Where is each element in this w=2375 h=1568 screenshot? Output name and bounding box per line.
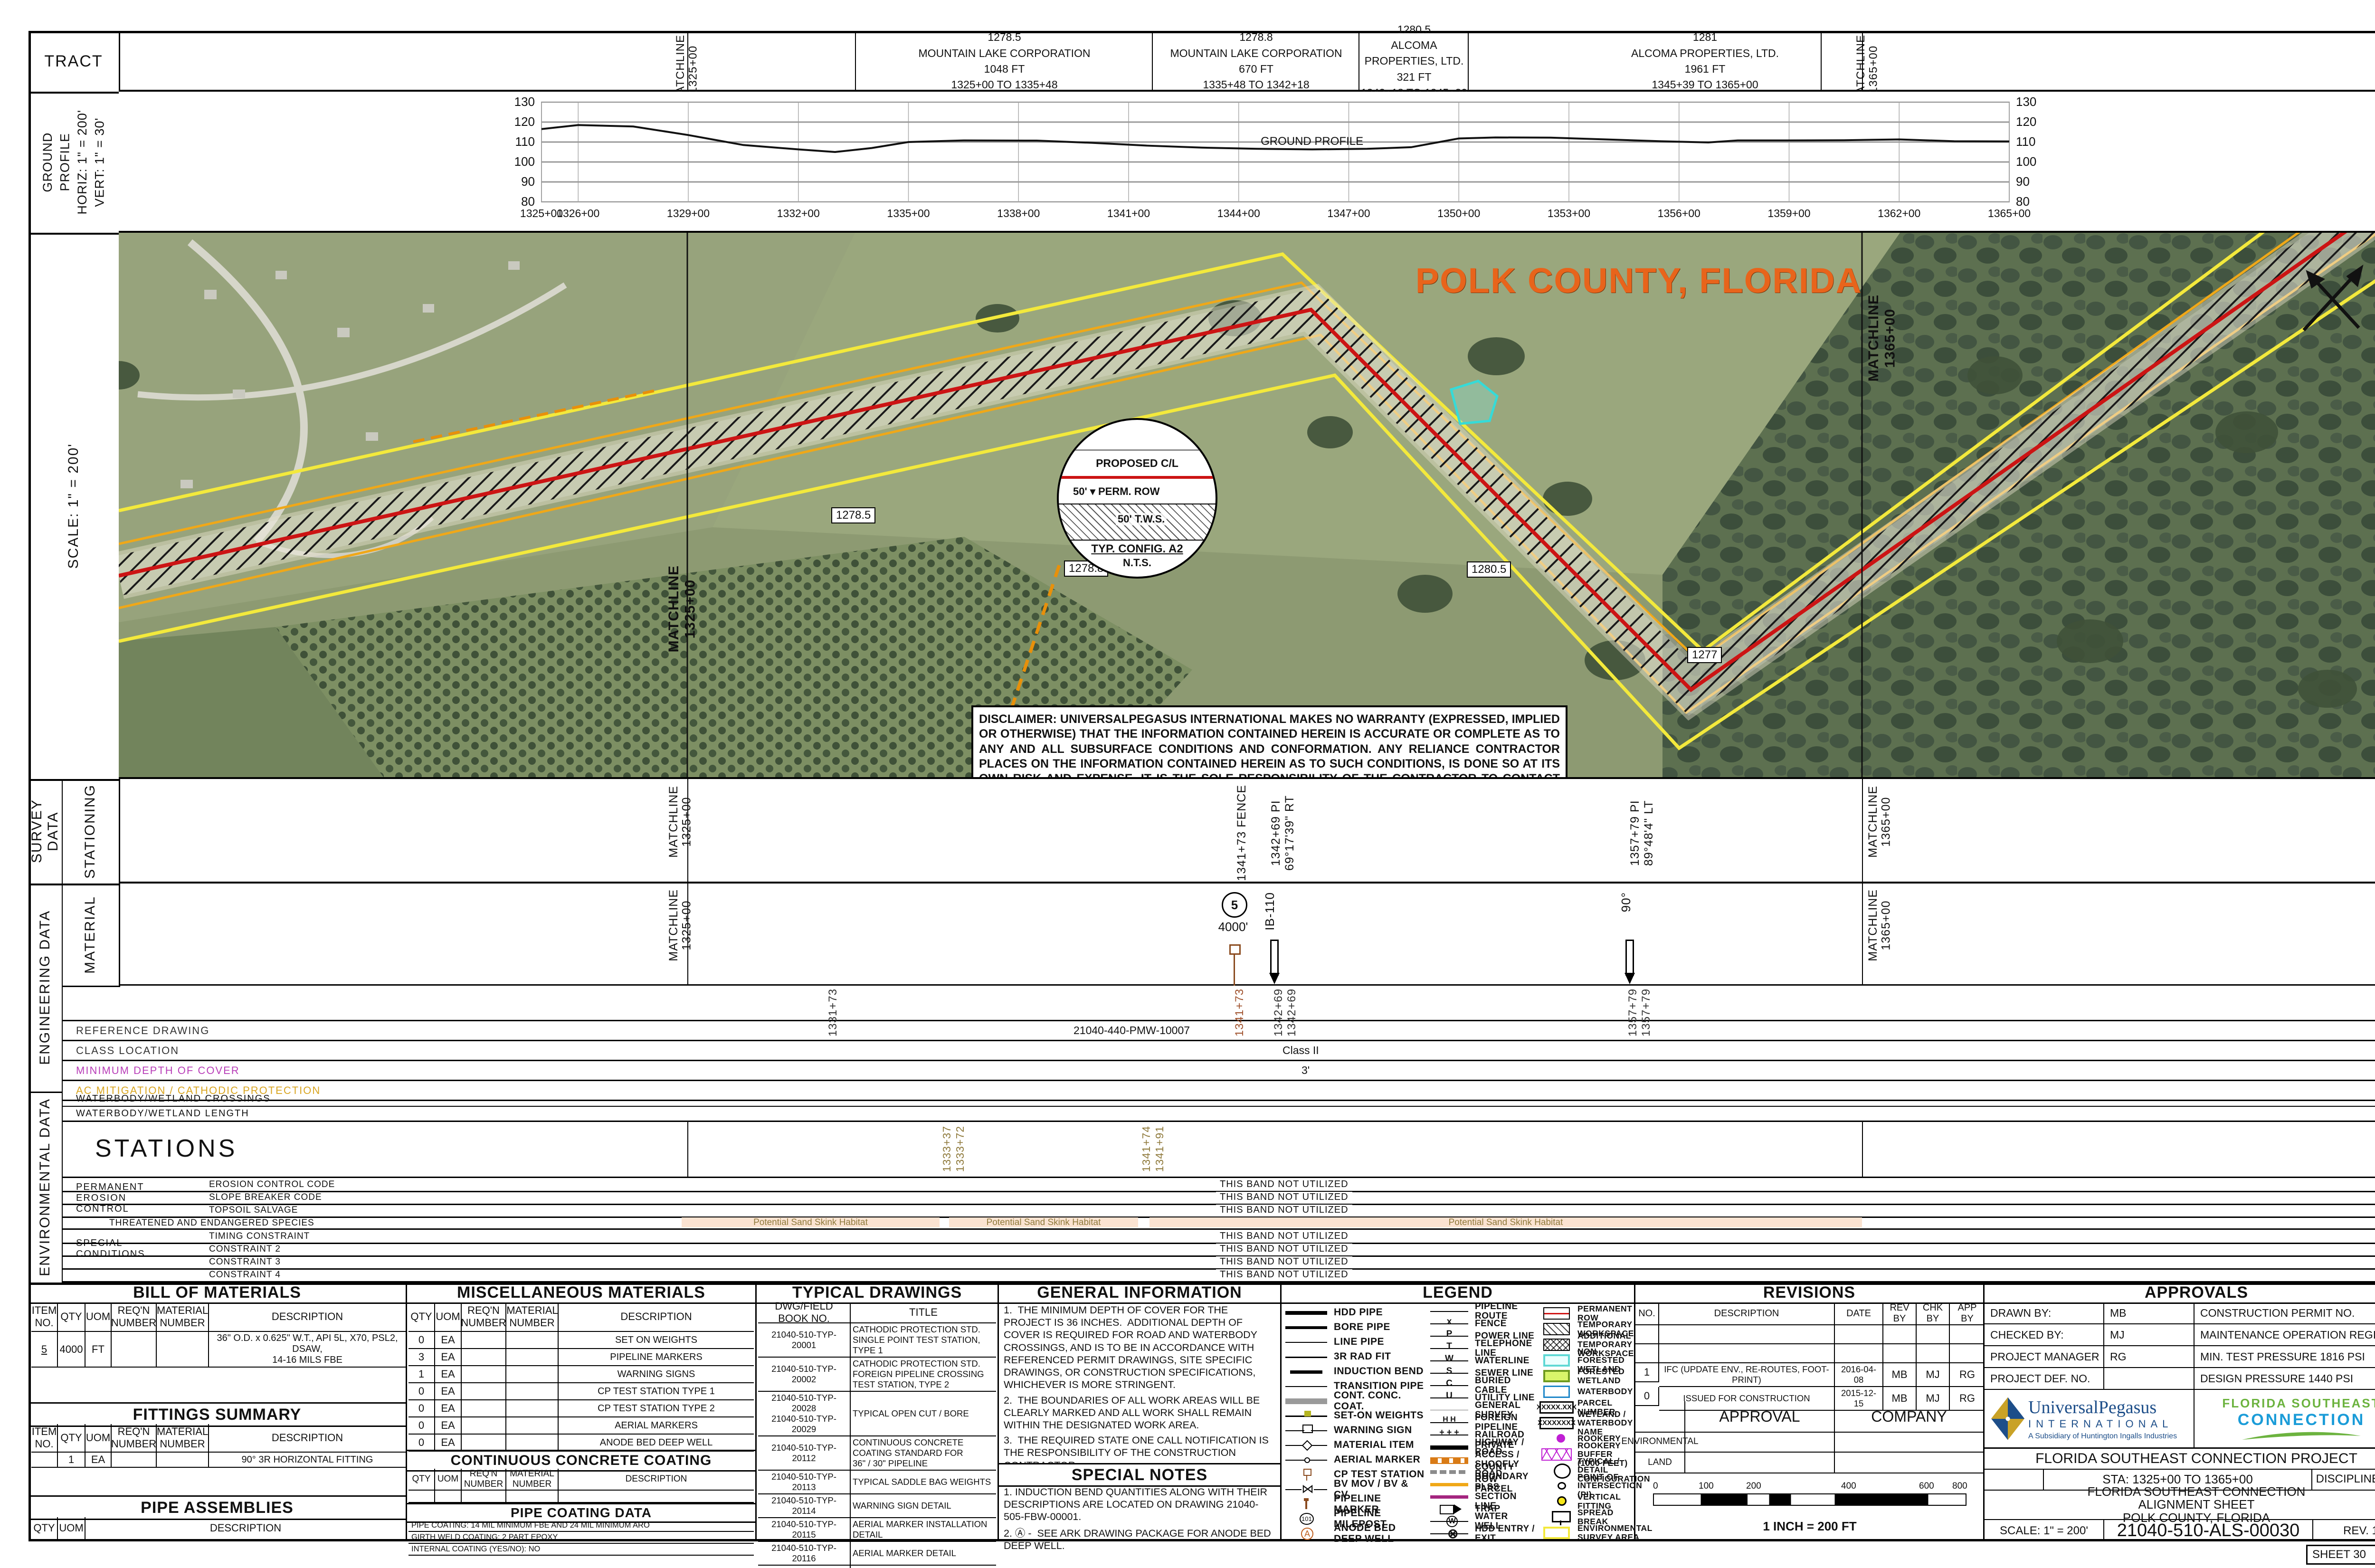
ccc-header-row: QTYUOMREQ'N NUMBERMATERIAL NUMBERDESCRIP… bbox=[408, 1469, 754, 1491]
typ-config-detail: PROPOSED C/L 50' ▾ PERM. ROW 50' T.W.S. … bbox=[1057, 418, 1217, 579]
legend-item: BURIED CABLE bbox=[1430, 1379, 1537, 1392]
svg-text:1332+00: 1332+00 bbox=[777, 207, 820, 219]
legend-label: TELEPHONE LINE bbox=[1475, 1339, 1537, 1358]
legend-symbol-icon bbox=[1285, 1513, 1327, 1525]
svg-text:120: 120 bbox=[2016, 114, 2036, 129]
engineering-stations-strip: 1331+731341+731342+691342+691357+791357+… bbox=[62, 986, 2375, 1021]
detail-perm-row: 50' ▾ PERM. ROW bbox=[1073, 485, 1160, 498]
env-station: 1341+74 bbox=[1140, 1126, 1153, 1172]
legend-item: ANODE BED DEEP WELL bbox=[1285, 1526, 1425, 1541]
env-band-row-label: SLOPE BREAKER CODE bbox=[209, 1192, 418, 1203]
general-info-item: 2. THE BOUNDARIES OF ALL WORK AREAS WILL… bbox=[999, 1393, 1280, 1433]
tract-owner: ALCOMA PROPERTIES, LTD. bbox=[1359, 38, 1469, 69]
env-band-row-label: EROSION CONTROL CODE bbox=[209, 1179, 418, 1190]
legend-symbol-icon bbox=[1285, 1395, 1327, 1407]
legend-symbol-icon bbox=[1285, 1351, 1327, 1363]
svg-text:120: 120 bbox=[514, 114, 535, 129]
legend-symbol-icon bbox=[1539, 1386, 1574, 1398]
survey-matchline-left: MATCHLINE 1325+00 bbox=[667, 786, 693, 858]
revisions-header-cell: DESCRIPTION bbox=[1659, 1302, 1835, 1325]
legend-symbol-icon bbox=[1430, 1491, 1468, 1503]
legend-symbol-icon bbox=[1430, 1318, 1468, 1330]
tract-stations: 1335+48 TO 1342+18 bbox=[1203, 77, 1309, 93]
general-info-title: GENERAL INFORMATION bbox=[999, 1283, 1280, 1304]
fittings-header-cell: UOM bbox=[85, 1424, 112, 1453]
fittings-header-cell: ITEM NO. bbox=[31, 1424, 58, 1453]
tract-length: 670 FT bbox=[1239, 61, 1273, 77]
misc-header-cell: REQ'N NUMBER bbox=[462, 1302, 506, 1332]
legend-item: INDUCTION BEND bbox=[1285, 1364, 1425, 1379]
bom-row: 54000FT36" O.D. x 0.625" W.T., API 5L, X… bbox=[31, 1332, 406, 1368]
env-band-row-label: TIMING CONSTRAINT bbox=[209, 1231, 418, 1242]
legend-item: ENVIRONMENTAL SURVEY AREA bbox=[1539, 1525, 1634, 1540]
band-not-utilized: THIS BAND NOT UTILIZED bbox=[1216, 1192, 1352, 1203]
revisions-header-row: NO.DESCRIPTIONDATEREV BYCHK BYAPP BY bbox=[1635, 1302, 1983, 1325]
stations-label: STATIONS bbox=[95, 1134, 237, 1163]
approvals-row: DRAWN BY:MBCONSTRUCTION PERMIT NO. bbox=[1985, 1302, 2375, 1324]
misc-row: 0EACP TEST STATION TYPE 1 bbox=[408, 1383, 754, 1400]
detail-proposed-cl: PROPOSED C/L bbox=[1059, 457, 1216, 470]
svg-text:1365+00: 1365+00 bbox=[1988, 207, 2031, 219]
svg-text:1326+00: 1326+00 bbox=[557, 207, 599, 219]
legend-item: WATERLINE bbox=[1430, 1355, 1537, 1367]
misc-row: 0EAAERIAL MARKERS bbox=[408, 1417, 754, 1435]
env-crossings-row: WATERBODY/WETLAND CROSSINGS bbox=[62, 1092, 2375, 1107]
legend-item: SPREAD BREAK bbox=[1539, 1509, 1634, 1525]
general-info-item: 3. THE REQUIRED STATE ONE CALL NOTIFICAT… bbox=[999, 1433, 1280, 1463]
svg-text:1359+00: 1359+00 bbox=[1767, 207, 1810, 219]
ccc-header-cell: UOM bbox=[435, 1469, 462, 1491]
legend-label: PIPELINE ROUTE bbox=[1475, 1302, 1537, 1321]
detail-tws: 50' T.W.S. bbox=[1116, 513, 1167, 525]
legend-symbol-icon bbox=[1285, 1410, 1327, 1422]
cp-test-station-icon bbox=[1229, 944, 1241, 955]
legend-item: VERTICAL FITTING bbox=[1539, 1493, 1634, 1509]
legend-symbol-icon bbox=[1285, 1321, 1327, 1334]
svg-text:100: 100 bbox=[514, 154, 535, 169]
sheet-number-box: SHEET 30 bbox=[2306, 1545, 2375, 1565]
svg-text:1341+00: 1341+00 bbox=[1107, 207, 1150, 219]
ccc-header-cell: REQ'N NUMBER bbox=[462, 1469, 506, 1491]
revisions-title: REVISIONS bbox=[1635, 1283, 1983, 1304]
legend-label: WATERBODY bbox=[1577, 1387, 1633, 1396]
legend-symbol-icon bbox=[1285, 1439, 1327, 1452]
legend-symbol-icon bbox=[1539, 1511, 1574, 1523]
detail-title: TYP. CONFIG. A2 bbox=[1059, 542, 1216, 556]
scale-note: SCALE: 1" = 200' bbox=[1985, 1520, 2104, 1541]
env-band-row: TOPSOIL SALVAGE THIS BAND NOT UTILIZED bbox=[62, 1204, 2375, 1218]
general-info-item: 1. THE MINIMUM DEPTH OF COVER FOR THE PR… bbox=[999, 1302, 1280, 1393]
legend-symbol-icon bbox=[1539, 1433, 1574, 1445]
svg-text:1335+00: 1335+00 bbox=[887, 207, 930, 219]
legend-symbol-icon bbox=[1539, 1464, 1574, 1476]
bom-header-cell: QTY bbox=[58, 1302, 85, 1332]
env-station: 1333+37 bbox=[940, 1126, 953, 1172]
special-note-item: 2. Ⓐ - SEE ARK DRAWING PACKAGE FOR ANODE… bbox=[999, 1525, 1280, 1554]
up-logo-tag: A Subsidiary of Huntington Ingalls Indus… bbox=[2028, 1432, 2177, 1441]
misc-row: 1EAWARNING SIGNS bbox=[408, 1366, 754, 1383]
survey-inner-label: STATIONING bbox=[62, 779, 120, 885]
up-logo-name: UniversalPegasus bbox=[2028, 1397, 2177, 1418]
tract-label: TRACT bbox=[28, 31, 120, 94]
legend-symbol-icon bbox=[1430, 1429, 1468, 1441]
misc-header-row: QTYUOMREQ'N NUMBERMATERIAL NUMBERDESCRIP… bbox=[408, 1302, 754, 1332]
legend-item: PERMANENT ROW bbox=[1539, 1305, 1634, 1321]
svg-text:1344+00: 1344+00 bbox=[1217, 207, 1260, 219]
svg-text:110: 110 bbox=[2016, 134, 2035, 149]
svg-text:80: 80 bbox=[2016, 194, 2030, 209]
legend-item: PLSS SECTION LINE bbox=[1430, 1491, 1537, 1503]
misc-row: 0EASET ON WEIGHTS bbox=[408, 1332, 754, 1349]
revisions-header-cell: REV BY bbox=[1883, 1302, 1917, 1325]
legend-symbol-icon bbox=[1430, 1392, 1468, 1404]
legend-label: WATERLINE bbox=[1475, 1356, 1529, 1366]
legend-symbol-icon bbox=[1285, 1380, 1327, 1393]
legend-symbol-icon bbox=[1285, 1498, 1327, 1511]
typical-row: 21040-510-TYP-20117TYPICAL PIPELINE MARK… bbox=[758, 1566, 996, 1568]
legend-symbol-icon bbox=[1539, 1448, 1574, 1461]
legend-symbol-icon bbox=[1430, 1454, 1468, 1466]
fittings-header-cell: MATERIAL NUMBER bbox=[157, 1424, 209, 1453]
legend-symbol-icon bbox=[1430, 1305, 1468, 1318]
env-band-row-label: CONSTRAINT 4 bbox=[209, 1270, 418, 1280]
env-band-row: EROSION CONTROL CODE THIS BAND NOT UTILI… bbox=[62, 1178, 2375, 1192]
te-species-label: THREATENED AND ENDANGERED SPECIES bbox=[109, 1218, 314, 1228]
legend-symbol-icon bbox=[1430, 1355, 1468, 1367]
fsc-logo-line1: FLORIDA SOUTHEAST bbox=[2222, 1396, 2375, 1411]
legend-label: FOREIGN PIPELINE bbox=[1475, 1413, 1537, 1432]
coating-line: PIPE COATING: 14 MIL MINIMUM FBE AND 24 … bbox=[408, 1520, 754, 1532]
legend-label: BURIED CABLE bbox=[1475, 1376, 1537, 1395]
approvals-row: CHECKED BY:MJMAINTENANCE OPERATION REGIO… bbox=[1985, 1324, 2375, 1346]
legend-symbol-icon bbox=[1430, 1528, 1468, 1540]
legend-symbol-icon bbox=[1285, 1483, 1327, 1496]
material-band: MATCHLINE 1325+00 MATCHLINE 1365+00 5 40… bbox=[119, 884, 2375, 986]
profile-label-cell: GROUND PROFILE HORIZ: 1" = 200' VERT: 1"… bbox=[28, 92, 120, 235]
revisions-header-cell: APP BY bbox=[1950, 1302, 1985, 1325]
legend-item: FORESTED WETLAND bbox=[1539, 1368, 1634, 1384]
band-not-utilized: THIS BAND NOT UTILIZED bbox=[1216, 1205, 1352, 1216]
material-matchline-left: MATCHLINE 1325+00 bbox=[667, 889, 693, 961]
band-not-utilized: THIS BAND NOT UTILIZED bbox=[1216, 1244, 1352, 1254]
legend-symbol-icon bbox=[1430, 1441, 1468, 1454]
legend-item: LINE PIPE bbox=[1285, 1335, 1425, 1349]
misc-header-cell: DESCRIPTION bbox=[559, 1302, 754, 1332]
legend-symbol-icon bbox=[1539, 1480, 1574, 1492]
legend-symbol-icon bbox=[1430, 1466, 1468, 1478]
env-stations-band: STATIONS 1333+371333+721341+741341+91 bbox=[62, 1122, 2375, 1178]
tract-owner: ALCOMA PROPERTIES, LTD. bbox=[1631, 46, 1779, 61]
tract-cell: 1278.5 MOUNTAIN LAKE CORPORATION 1048 FT… bbox=[855, 31, 1153, 92]
profile-label: GROUND PROFILE HORIZ: 1" = 200' VERT: 1"… bbox=[39, 110, 108, 215]
misc-header-cell: UOM bbox=[435, 1302, 462, 1332]
band-not-utilized: THIS BAND NOT UTILIZED bbox=[1216, 1256, 1352, 1267]
legend-symbol-icon bbox=[1539, 1527, 1574, 1539]
env-band-row: CONSTRAINT 4 THIS BAND NOT UTILIZED bbox=[62, 1268, 2375, 1283]
bom-header-row: ITEM NO.QTYUOMREQ'N NUMBERMATERIAL NUMBE… bbox=[31, 1302, 406, 1332]
misc-title: MISCELLANEOUS MATERIALS bbox=[407, 1283, 755, 1304]
engineering-row-value: 21040-440-PMW-10007 bbox=[1073, 1021, 1190, 1040]
tract-cell: 1278.8 MOUNTAIN LAKE CORPORATION 670 FT … bbox=[1152, 31, 1359, 92]
legend-symbol-icon bbox=[1539, 1323, 1574, 1335]
assemblies-header-cell: QTY bbox=[31, 1517, 58, 1540]
sheet-title-block: FLORIDA SOUTHEAST CONNECTION ALIGNMENT S… bbox=[1985, 1491, 2375, 1520]
typical-row: 21040-510-TYP-20002CATHODIC PROTECTION S… bbox=[758, 1358, 996, 1392]
env-band-row-label: TOPSOIL SALVAGE bbox=[209, 1205, 418, 1216]
legend-symbol-icon bbox=[1285, 1366, 1327, 1378]
fittings-title: FITTINGS SUMMARY bbox=[28, 1402, 406, 1427]
legend-label: SET-ON WEIGHTS bbox=[1334, 1410, 1424, 1421]
legend-item: NON FORESTED WETLAND bbox=[1539, 1352, 1634, 1368]
legend-label: 3R RAD FIT bbox=[1334, 1351, 1391, 1362]
detail-nts: N.T.S. bbox=[1059, 557, 1216, 569]
engineering-row-label: CLASS LOCATION bbox=[76, 1041, 179, 1060]
coating-line: GIRTH WELD COATING: 2 PART EPOXY bbox=[408, 1532, 754, 1544]
engineering-row-value: 3' bbox=[1301, 1061, 1310, 1080]
survey-station-label: 1357+79 PI 89°48'4" LT bbox=[1628, 785, 1656, 882]
legend-item: CONT. CONC. COAT. bbox=[1285, 1394, 1425, 1408]
map-parcel-label: 1278.5 bbox=[831, 507, 875, 523]
legend-symbol-icon bbox=[1430, 1342, 1468, 1355]
fittings-header-cell: QTY bbox=[58, 1424, 85, 1453]
survey-matchline-right: MATCHLINE 1365+00 bbox=[1867, 786, 1893, 858]
habitat-segment: Potential Sand Skink Habitat bbox=[682, 1217, 940, 1227]
tract-owner: MOUNTAIN LAKE CORPORATION bbox=[918, 46, 1090, 61]
fittings-header-row: ITEM NO.QTYUOMREQ'N NUMBERMATERIAL NUMBE… bbox=[31, 1424, 406, 1453]
habitat-segment: Potential Sand Skink Habitat bbox=[1149, 1217, 1862, 1227]
tract-number: 1278.5 bbox=[988, 29, 1021, 45]
band-not-utilized: THIS BAND NOT UTILIZED bbox=[1216, 1231, 1352, 1242]
fsc-logo-swoosh bbox=[2240, 1429, 2363, 1442]
legend-symbol-icon bbox=[1285, 1336, 1327, 1349]
map-scale-label: SCALE: 1" = 200' bbox=[66, 443, 82, 569]
material-label: MATERIAL bbox=[62, 884, 120, 987]
misc-header-cell: QTY bbox=[408, 1302, 435, 1332]
fittings-row: 1EA90° 3R HORIZONTAL FITTING bbox=[31, 1453, 406, 1468]
revisions-header-cell: DATE bbox=[1835, 1302, 1883, 1325]
map-matchline-right-label: MATCHLINE 1365+00 bbox=[1866, 295, 1899, 381]
survey-outer-label: SURVEY DATA bbox=[28, 779, 63, 885]
drawing-number: 21040-510-ALS-00030 bbox=[2104, 1520, 2313, 1541]
scale-caption: 1 INCH = 200 FT bbox=[1653, 1519, 1966, 1534]
engineering-row: MINIMUM DEPTH OF COVER 3' bbox=[62, 1061, 2375, 1081]
map-band: POLK COUNTY, FLORIDA MATCHLINE 1325+00 M… bbox=[119, 233, 2375, 779]
scale-bar: 0 100 200 400 600 800 1 INCH = 200 FT bbox=[1653, 1481, 1966, 1534]
legend-item: AERIAL MARKER bbox=[1285, 1453, 1425, 1467]
survey-station-label: 1342+69 PI 69°17'39" RT bbox=[1269, 785, 1297, 882]
env-band-row: CONSTRAINT 3 THIS BAND NOT UTILIZED bbox=[62, 1255, 2375, 1270]
bom-header-cell: DESCRIPTION bbox=[209, 1302, 406, 1332]
env-band-row-label: CONSTRAINT 2 bbox=[209, 1244, 418, 1254]
legend-label: ENVIRONMENTAL SURVEY AREA bbox=[1577, 1524, 1653, 1541]
svg-text:90: 90 bbox=[521, 174, 535, 189]
legend-item: TELEPHONE LINE bbox=[1430, 1342, 1537, 1355]
svg-text:1329+00: 1329+00 bbox=[667, 207, 710, 219]
bom-header-cell: ITEM NO. bbox=[31, 1302, 58, 1332]
band-not-utilized: THIS BAND NOT UTILIZED bbox=[1216, 1179, 1352, 1190]
legend-label: CONT. CONC. COAT. bbox=[1334, 1390, 1425, 1411]
approval-row: LAND bbox=[1635, 1453, 1983, 1473]
sheet-title-line2: ALIGNMENT SHEET bbox=[2138, 1498, 2254, 1511]
ccc-row bbox=[408, 1491, 754, 1503]
env-length-label: WATERBODY/WETLAND LENGTH bbox=[76, 1108, 249, 1119]
legend-label: AERIAL MARKER bbox=[1334, 1454, 1420, 1465]
bom-header-cell: UOM bbox=[85, 1302, 112, 1332]
legend-label: HDD ENTRY / EXIT bbox=[1475, 1524, 1537, 1543]
svg-text:1347+00: 1347+00 bbox=[1327, 207, 1370, 219]
map-title: POLK COUNTY, FLORIDA bbox=[1411, 260, 1867, 301]
map-matchline-left-label: MATCHLINE 1325+00 bbox=[666, 565, 699, 652]
bom-title: BILL OF MATERIALS bbox=[28, 1283, 406, 1304]
typical-row: 21040-510-TYP-20028 21040-510-TYP-20029T… bbox=[758, 1392, 996, 1436]
up-logo: UniversalPegasus INTERNATIONAL A Subsidi… bbox=[1985, 1390, 2194, 1449]
legend-label: INDUCTION BEND bbox=[1334, 1366, 1424, 1377]
sheet-title-line1: FLORIDA SOUTHEAST CONNECTION bbox=[2088, 1485, 2306, 1498]
legend-item: WATERBODY bbox=[1539, 1384, 1634, 1399]
legend-symbol-icon bbox=[1539, 1354, 1574, 1367]
legend-symbol-icon bbox=[1430, 1503, 1468, 1515]
engineering-row-label: REFERENCE DRAWING bbox=[76, 1021, 209, 1040]
ccc-header-cell: MATERIAL NUMBER bbox=[506, 1469, 559, 1491]
env-station: 1341+91 bbox=[1153, 1126, 1166, 1172]
tract-band: MATCHLINE 1325+00 MATCHLINE 1365+00 1278… bbox=[119, 31, 2375, 92]
engineering-outer-label: ENGINEERING DATA bbox=[28, 884, 63, 1093]
material-item-ib: IB-110 bbox=[1263, 892, 1277, 931]
legend-symbol-icon bbox=[1539, 1339, 1574, 1351]
legend-item: HDD PIPE bbox=[1285, 1305, 1425, 1320]
approvals-title: APPROVALS bbox=[1985, 1283, 2375, 1304]
legend-label: WETLAND / WATERBODY NAME bbox=[1577, 1410, 1634, 1436]
engineering-row-value: Class II bbox=[1282, 1041, 1319, 1060]
env-band-row-label: CONSTRAINT 3 bbox=[209, 1257, 418, 1267]
tract-stations: 1325+00 TO 1335+48 bbox=[951, 77, 1057, 93]
legend-label: WARNING SIGN bbox=[1334, 1425, 1412, 1435]
special-note-item: 1. INDUCTION BEND QUANTITIES ALONG WITH … bbox=[999, 1484, 1280, 1525]
survey-band: MATCHLINE 1325+00 MATCHLINE 1365+00 1341… bbox=[119, 779, 2375, 884]
survey-station-label: 1341+73 FENCE bbox=[1235, 785, 1249, 881]
env-band-row: CONSTRAINT 2 THIS BAND NOT UTILIZED bbox=[62, 1243, 2375, 1257]
project-name-row: FLORIDA SOUTHEAST CONNECTION PROJECT bbox=[1985, 1449, 2375, 1470]
tract-length: 1048 FT bbox=[984, 61, 1025, 77]
band-not-utilized: THIS BAND NOT UTILIZED bbox=[1216, 1269, 1352, 1280]
legend-symbol-icon bbox=[1539, 1370, 1574, 1382]
bom-header-cell: REQ'N NUMBER bbox=[112, 1302, 157, 1332]
svg-text:1356+00: 1356+00 bbox=[1658, 207, 1700, 219]
svg-text:100: 100 bbox=[2016, 154, 2036, 169]
legend-label: FORESTED WETLAND bbox=[1577, 1367, 1634, 1385]
svg-text:90: 90 bbox=[2016, 174, 2030, 189]
revisions-header-cell: NO. bbox=[1635, 1302, 1659, 1325]
legend-symbol-icon bbox=[1539, 1417, 1574, 1429]
legend-item: WARNING SIGN bbox=[1285, 1423, 1425, 1438]
legend-item: BORE PIPE bbox=[1285, 1320, 1425, 1335]
material-item-qty: 4000' bbox=[1211, 920, 1255, 934]
svg-text:110: 110 bbox=[515, 134, 535, 149]
legend-symbol-icon bbox=[1430, 1367, 1468, 1379]
fittings-header-cell: DESCRIPTION bbox=[209, 1424, 406, 1453]
habitat-segment: Potential Sand Skink Habitat bbox=[949, 1217, 1138, 1227]
misc-row: 0EAANODE BED DEEP WELL bbox=[408, 1435, 754, 1452]
env-band-row: TIMING CONSTRAINT THIS BAND NOT UTILIZED bbox=[62, 1230, 2375, 1244]
legend-symbol-icon bbox=[1285, 1307, 1327, 1319]
vertical-fitting-icon bbox=[1625, 940, 1634, 976]
legend-title: LEGEND bbox=[1282, 1283, 1634, 1304]
assemblies-title: PIPE ASSEMBLIES bbox=[28, 1495, 406, 1520]
legend-item: POINT OF INTERSECTION (PI) bbox=[1539, 1478, 1634, 1493]
svg-text:1353+00: 1353+00 bbox=[1548, 207, 1590, 219]
legend-label: BORE PIPE bbox=[1334, 1322, 1390, 1332]
typical-row: 21040-510-TYP-20113TYPICAL SADDLE BAG WE… bbox=[758, 1471, 996, 1494]
revisions-header-cell: CHK BY bbox=[1917, 1302, 1950, 1325]
legend-item: 3R RAD FIT bbox=[1285, 1349, 1425, 1364]
legend-item: WETLAND / WATERBODY NAME bbox=[1539, 1415, 1634, 1431]
engineering-row: CLASS LOCATION Class II bbox=[62, 1041, 2375, 1061]
approval-header: APPROVAL bbox=[1685, 1401, 1835, 1433]
typical-row: 21040-510-TYP-20112CONTINUOUS CONCRETE C… bbox=[758, 1436, 996, 1471]
map-scale-cell: SCALE: 1" = 200' bbox=[28, 233, 120, 781]
special-notes-title: SPECIAL NOTES bbox=[999, 1463, 1280, 1487]
up-logo-sub: INTERNATIONAL bbox=[2028, 1418, 2177, 1430]
legend-symbol-icon bbox=[1285, 1469, 1327, 1481]
fittings-header-cell: REQ'N NUMBER bbox=[112, 1424, 157, 1453]
typical-row: 21040-510-TYP-20114WARNING SIGN DETAIL bbox=[758, 1494, 996, 1518]
profile-band: 808090901001001101101201201301301325+001… bbox=[119, 92, 2375, 233]
typical-row: 21040-510-TYP-20001CATHODIC PROTECTION S… bbox=[758, 1323, 996, 1358]
legend-label: FENCE bbox=[1475, 1319, 1507, 1329]
map-disclaimer: DISCLAIMER: UNIVERSALPEGASUS INTERNATION… bbox=[971, 705, 1567, 779]
legend-item: HDD ENTRY / EXIT bbox=[1430, 1528, 1537, 1540]
revision-number: REV. 1 bbox=[2313, 1520, 2375, 1541]
fsc-logo-line2: CONNECTION bbox=[2238, 1411, 2365, 1429]
map-parcel-label: 1277 bbox=[1687, 647, 1722, 663]
legend-symbol-icon bbox=[1430, 1330, 1468, 1342]
tract-stations: 1345+39 TO 1365+00 bbox=[1652, 77, 1758, 93]
material-item-angle: 90° bbox=[1619, 892, 1634, 912]
assemblies-header-row: QTYUOMDESCRIPTION bbox=[31, 1517, 406, 1540]
revisions-row bbox=[1635, 1344, 1983, 1363]
bom-header-cell: MATERIAL NUMBER bbox=[157, 1302, 209, 1332]
te-species-row: THREATENED AND ENDANGERED SPECIES Potent… bbox=[62, 1216, 2375, 1230]
aerial-map bbox=[119, 233, 2375, 779]
legend-symbol-icon bbox=[1430, 1478, 1468, 1491]
legend-symbol-icon bbox=[1285, 1528, 1327, 1540]
svg-text:1362+00: 1362+00 bbox=[1878, 207, 1920, 219]
ccc-header-cell: DESCRIPTION bbox=[559, 1469, 754, 1491]
revisions-row: 1IFC (UPDATE ENV., RE-ROUTES, FOOT-PRINT… bbox=[1635, 1363, 1983, 1387]
assemblies-header-cell: UOM bbox=[58, 1517, 85, 1540]
typical-header-row: DWG/FIELD BOOK NO.TITLE bbox=[758, 1302, 996, 1323]
misc-header-cell: MATERIAL NUMBER bbox=[506, 1302, 559, 1332]
legend-item: MATERIAL ITEM bbox=[1285, 1438, 1425, 1453]
env-crossings-label: WATERBODY/WETLAND CROSSINGS bbox=[76, 1093, 271, 1104]
material-matchline-right: MATCHLINE 1365+00 bbox=[1867, 889, 1893, 961]
revisions-row bbox=[1635, 1325, 1983, 1344]
legend-symbol-icon bbox=[1539, 1495, 1574, 1508]
engineering-row: REFERENCE DRAWING 21040-440-PMW-10007 bbox=[62, 1021, 2375, 1041]
tract-cell: 1280.5 ALCOMA PROPERTIES, LTD. 321 FT 13… bbox=[1358, 31, 1469, 92]
env-band-row: SLOPE BREAKER CODE THIS BAND NOT UTILIZE… bbox=[62, 1191, 2375, 1205]
engineering-row-label: MINIMUM DEPTH OF COVER bbox=[76, 1061, 240, 1080]
alignment-sheet: TRACT MATCHLINE 1325+00 MATCHLINE 1365+0… bbox=[0, 0, 2375, 1568]
approvals-row: PROJECT MANAGERRGMIN. TEST PRESSURE 1816… bbox=[1985, 1346, 2375, 1368]
coating-line: INTERNAL COATING (YES/NO): NO bbox=[408, 1544, 754, 1556]
company-header: COMPANY bbox=[1835, 1401, 1983, 1433]
fsc-logo: FLORIDA SOUTHEAST CONNECTION bbox=[2194, 1390, 2375, 1449]
tract-number: 1280.5 bbox=[1397, 22, 1431, 38]
typical-row: 21040-510-TYP-20116AERIAL MARKER DETAIL bbox=[758, 1542, 996, 1566]
discipline: DISCIPLINE#: 03 bbox=[2312, 1469, 2375, 1490]
tract-cell: 1281 ALCOMA PROPERTIES, LTD. 1961 FT 134… bbox=[1468, 31, 1941, 92]
